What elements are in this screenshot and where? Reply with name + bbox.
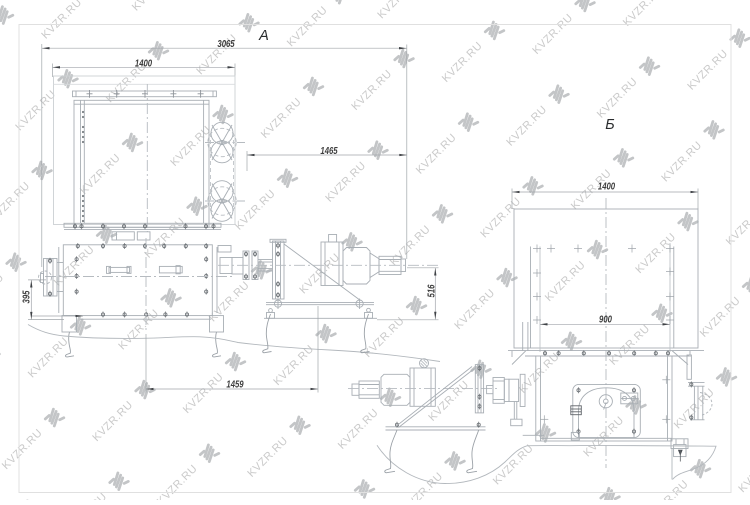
svg-text:395: 395 bbox=[20, 290, 31, 303]
svg-text:3065: 3065 bbox=[217, 38, 234, 49]
svg-text:А: А bbox=[258, 28, 269, 44]
svg-text:Б: Б bbox=[605, 117, 614, 133]
svg-text:1400: 1400 bbox=[598, 181, 615, 192]
svg-text:516: 516 bbox=[426, 284, 437, 297]
svg-text:1400: 1400 bbox=[135, 57, 152, 68]
svg-text:900: 900 bbox=[599, 313, 612, 324]
svg-text:1465: 1465 bbox=[320, 145, 337, 156]
svg-text:1459: 1459 bbox=[226, 379, 243, 390]
